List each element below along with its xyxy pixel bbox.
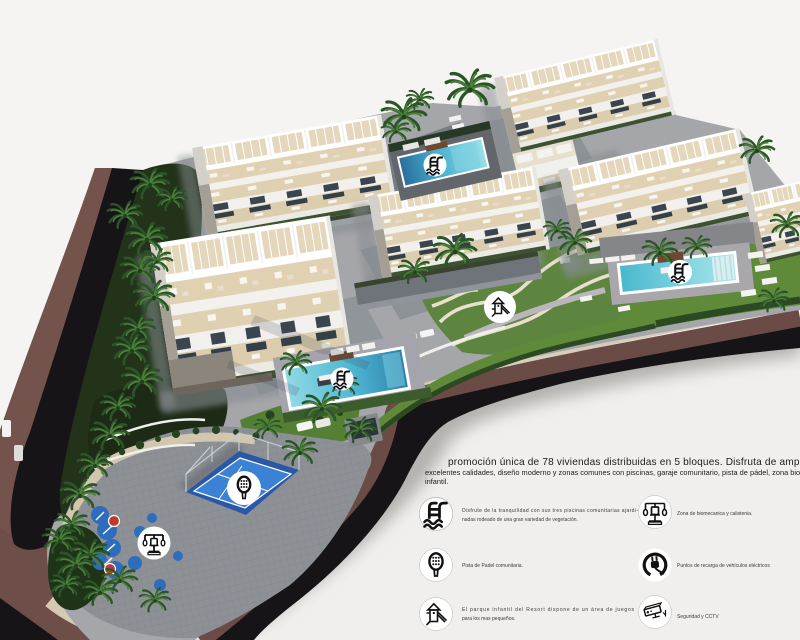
svg-text:Disfrute de la tranquilidad co: Disfrute de la tranquilidad con sus tres… <box>462 508 638 514</box>
svg-text:Zona de biomecanica y calisten: Zona de biomecanica y calistenia. <box>677 511 752 517</box>
svg-text:Seguridad y CCTV: Seguridad y CCTV <box>677 614 719 620</box>
svg-text:para los mas pequeños.: para los mas pequeños. <box>462 616 515 622</box>
svg-text:infantil.: infantil. <box>425 477 448 486</box>
svg-text:Pista de Padel comunitaria.: Pista de Padel comunitaria. <box>462 563 523 569</box>
svg-text:Puntos de recarga de vehículos: Puntos de recarga de vehículos eléctrico… <box>677 563 770 569</box>
svg-text:excelentes calidades, diseño m: excelentes calidades, diseño moderno y z… <box>425 468 800 477</box>
svg-text:nadas rodeado de una gran vari: nadas rodeado de una gran variedad de ve… <box>462 517 578 523</box>
svg-text:El parque infantil del Resort: El parque infantil del Resort dispone de… <box>462 607 635 613</box>
svg-text:promoción única de 78 vivienda: promoción única de 78 viviendas distribu… <box>448 457 800 468</box>
